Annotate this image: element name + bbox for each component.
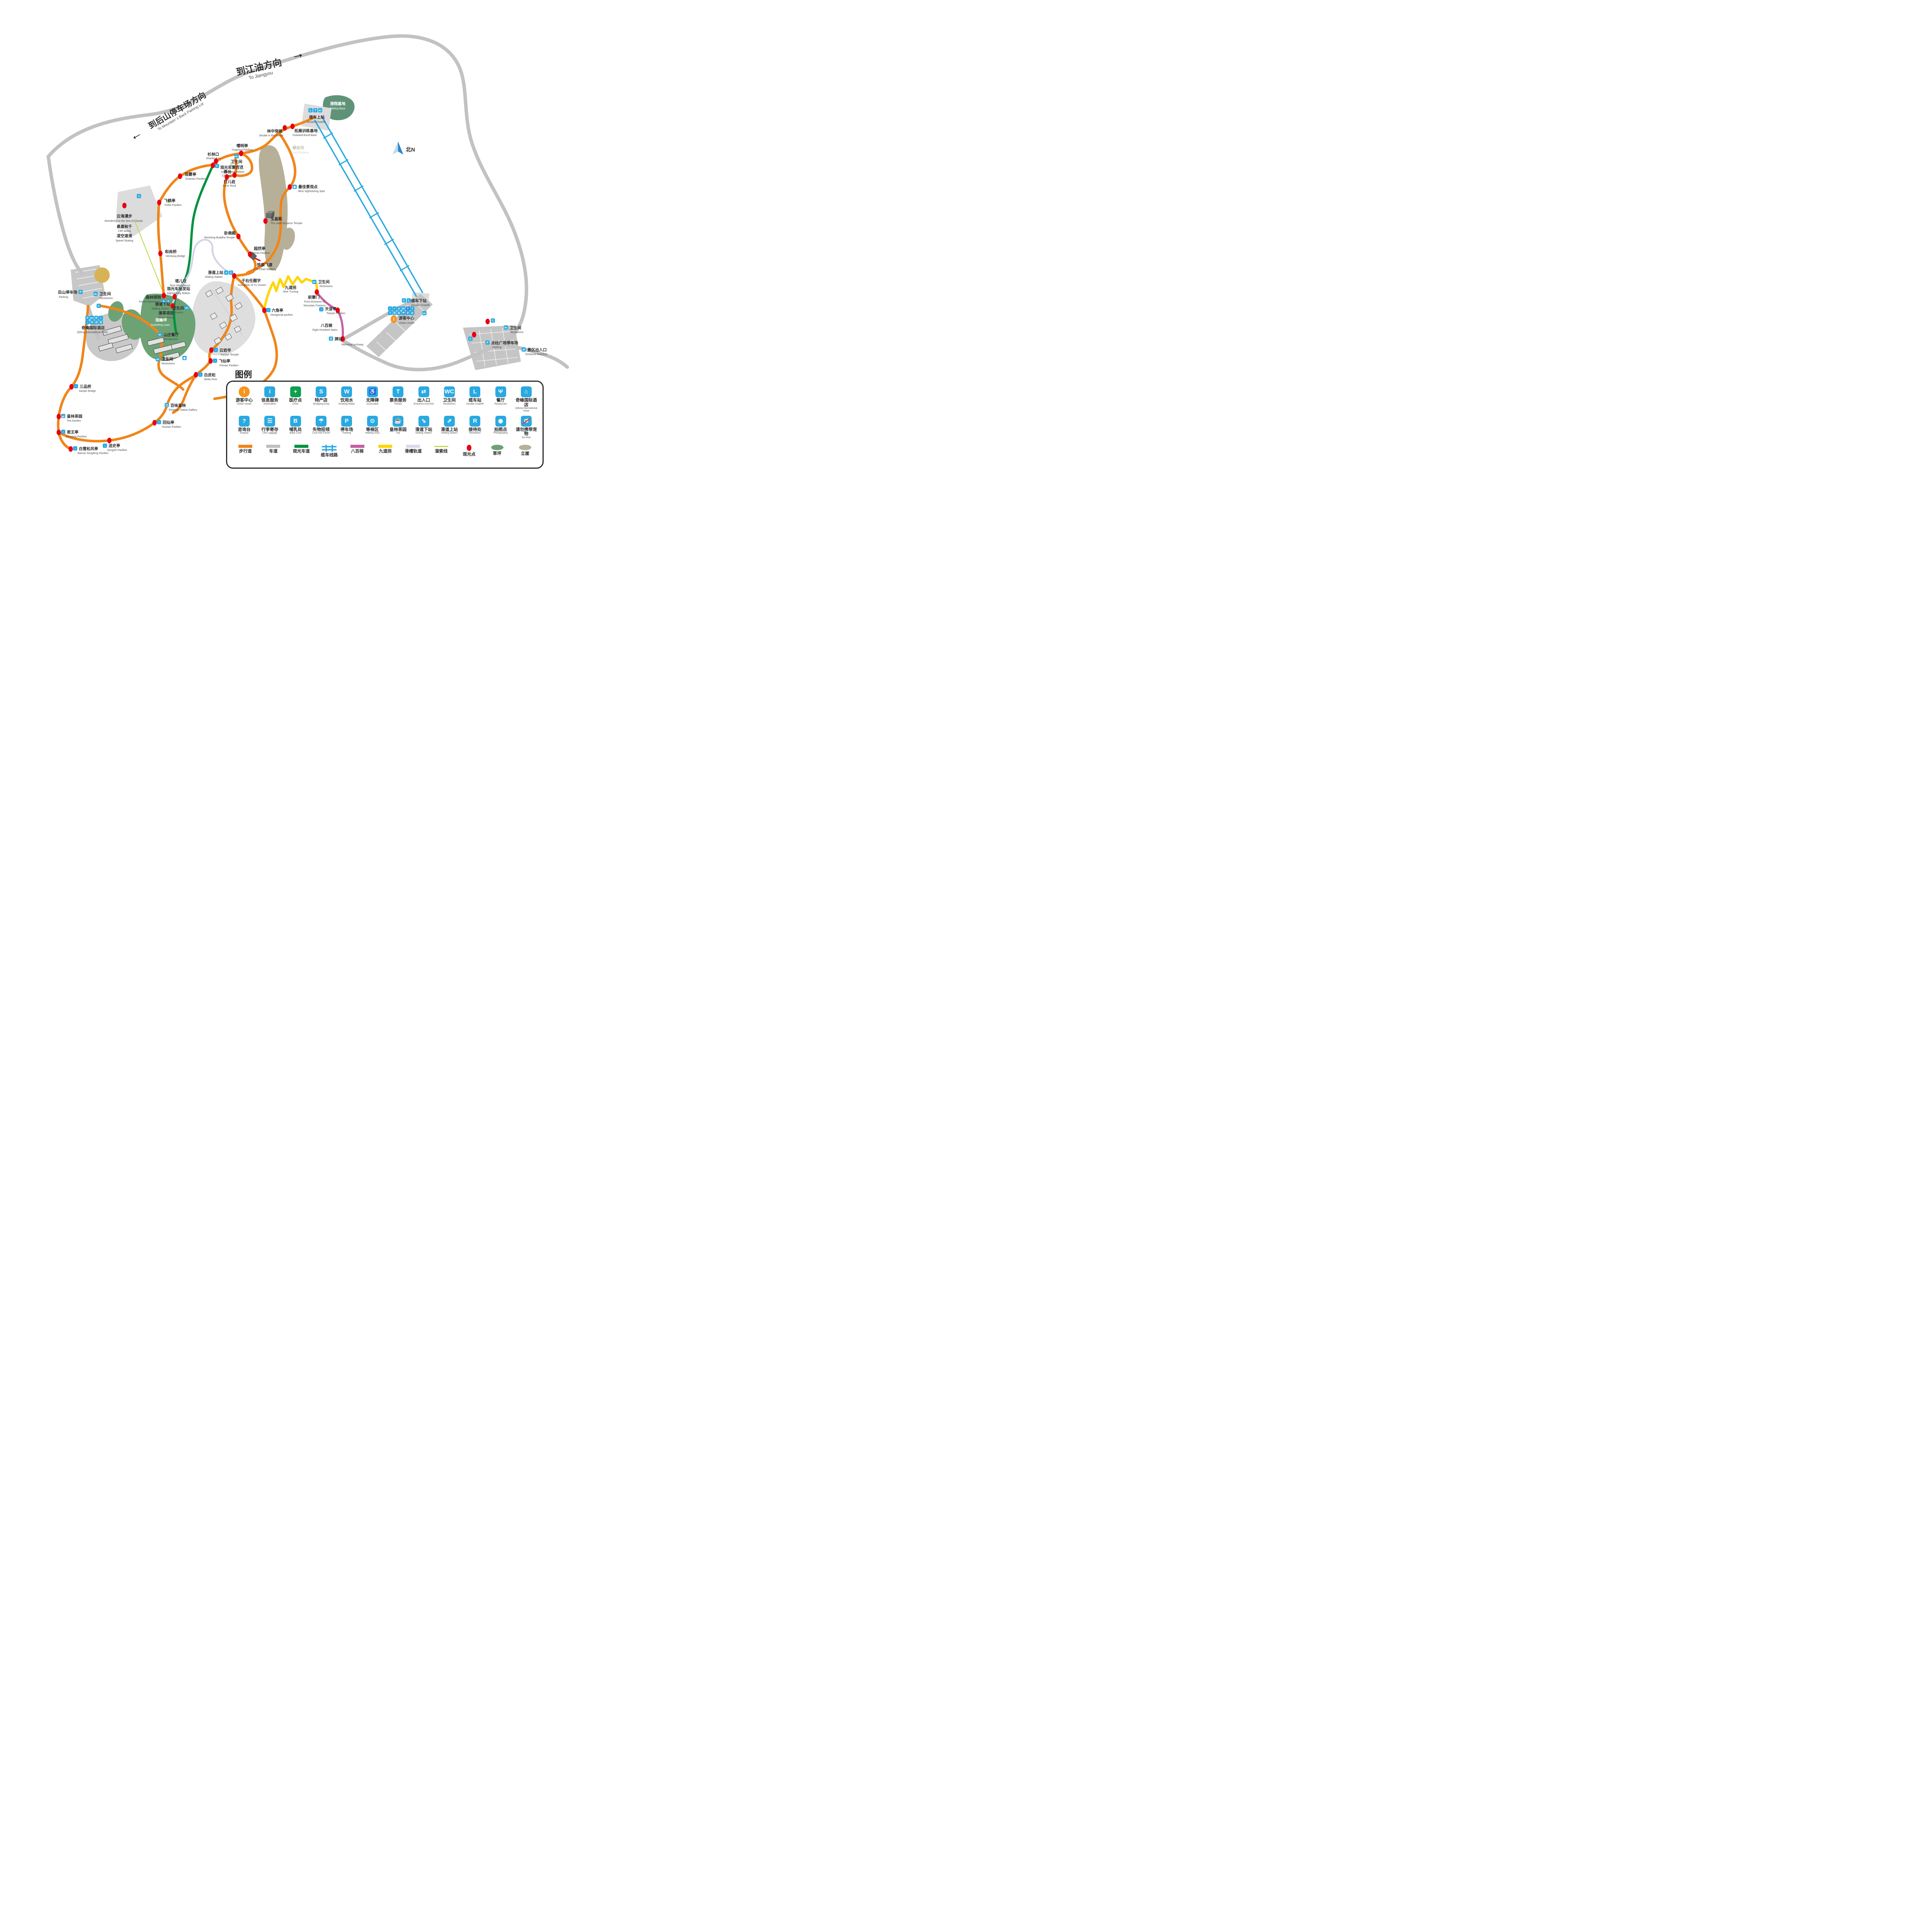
- legend-item-information: i信息服务Information: [257, 386, 282, 413]
- legend-item-tea: ☕皇林茶园Tea: [386, 415, 410, 439]
- spot-dot: [211, 163, 215, 168]
- legend-swatch: [378, 445, 392, 448]
- poi-label-cn: 滑翔基地: [330, 101, 345, 106]
- legend-label-cn: 餐厅: [488, 398, 513, 403]
- spot-dot: [288, 184, 292, 190]
- poi-label-en: Restrooms: [230, 165, 243, 167]
- restaurant-icon: Ψ: [90, 320, 94, 325]
- legend-label-en: Baby Care: [283, 432, 308, 435]
- tea-icon: ☕: [61, 414, 65, 418]
- legend-item-restrooms: WC卫生间Restrooms: [437, 386, 462, 413]
- legend-box: i游客中心Visitor centeri信息服务Information+医疗点C…: [226, 381, 544, 469]
- spot-dot: [178, 173, 182, 179]
- legend-item-restaurant: Ψ餐厅Restaurant: [488, 386, 513, 413]
- poi-label-cn: 卫生间: [99, 291, 111, 296]
- glide-up-icon: ⇗: [224, 270, 228, 275]
- spot-dot: [69, 446, 73, 452]
- legend-label-en: Enquiry: [232, 432, 257, 435]
- restaurant-icon: Ψ: [495, 386, 506, 397]
- spot-dot: [315, 289, 319, 295]
- legend-label-en: Waiting Area: [360, 432, 385, 435]
- poi-label-en: Parking: [59, 296, 68, 299]
- poi-label-cn: 皇林茶园: [67, 414, 82, 419]
- svg-text:♿: ♿: [406, 307, 410, 310]
- legend-line-步行道: 步行道: [232, 442, 259, 458]
- poi-label-en: Shanlin Kou: [206, 157, 221, 160]
- svg-text:◉: ◉: [183, 356, 186, 360]
- poi-label-cn: 卫生间: [172, 306, 184, 311]
- poi-baiwei-huanglin: ∏百味皇林Emperor Statue Gallery: [165, 403, 197, 412]
- legend-label-en: Gliding Station: [437, 432, 462, 435]
- legend-line-九道拐: 九道拐: [372, 442, 399, 458]
- chairlift-icon: L: [469, 386, 480, 397]
- poi-label-cn: 八百梯: [320, 323, 332, 328]
- restroom-icon: WC: [444, 386, 455, 397]
- svg-text:WC: WC: [156, 359, 160, 361]
- legend-label-cn: 奇峰国际酒店: [514, 398, 539, 407]
- info-icon: i: [388, 306, 392, 311]
- spot-dot: [57, 414, 61, 419]
- poi-label-cn: 森林探险: [145, 295, 162, 300]
- scenic-map-canvas: 到江油方向 To Jiangyou → 到后山停车场方向 To Mountain…: [0, 0, 606, 486]
- poi-label-en: Guanfeng Lawn: [151, 324, 170, 327]
- clinic-icon: +: [393, 306, 397, 311]
- enquiry-icon: ?: [388, 311, 392, 315]
- legend-swatch: [350, 445, 364, 448]
- svg-text:⌂: ⌂: [267, 308, 269, 312]
- legend-label-cn: 观光车道: [288, 449, 315, 454]
- poi-label-en: Gliding Station: [205, 276, 223, 279]
- legend-label-cn: 票务服务: [386, 398, 410, 403]
- pavilion-icon: ⌂: [73, 446, 77, 451]
- svg-text:WC: WC: [90, 317, 94, 320]
- svg-text:R: R: [95, 316, 98, 320]
- poi-label-cn: 白皮松: [204, 372, 216, 378]
- poi-reclining-buddha-temple: 卧佛殿Reclining Buddha Temple: [204, 231, 241, 239]
- svg-text:WC: WC: [94, 293, 97, 296]
- accessible-icon: ♿: [367, 386, 378, 397]
- svg-text:☕: ☕: [61, 414, 65, 418]
- tea-icon: ☕: [393, 416, 403, 427]
- poi-label-cn: 超然亭: [253, 246, 265, 251]
- spot-dot: [70, 384, 74, 389]
- poi-rock-climbing-label: 攀岩场Rock Climbing: [291, 145, 308, 154]
- poi-label-en: Wondering in the Sea of Clouds: [105, 220, 143, 223]
- legend-label-en: Entrance And Exit: [412, 403, 436, 406]
- svg-text:i: i: [100, 316, 101, 320]
- legend-item-lost-and-found: ☂失物招领Lost And Found: [309, 415, 333, 439]
- legend-label-cn: 请勿携带宠物: [514, 428, 539, 437]
- legend-item-reception: R接待处Reception: [463, 415, 487, 439]
- legend-line-观光点: 观光点: [456, 442, 483, 458]
- spot-dot: [194, 372, 198, 378]
- poi-best-sightseeing-spot: ◉最佳景观点Best Sightseeing Spot: [288, 184, 325, 193]
- reception-icon: R: [469, 416, 480, 427]
- poi-label-en: Eight Hundred Stairs: [313, 329, 338, 332]
- restroom-icon: WC: [90, 316, 94, 320]
- hotel-icon: ⌂: [85, 320, 90, 325]
- svg-text:P: P: [407, 311, 409, 315]
- visitor-icon: i: [239, 386, 250, 397]
- svg-text:∩: ∩: [75, 384, 77, 388]
- poi-label-en: Restrooms: [170, 311, 183, 314]
- pavilion-icon: ⌂: [198, 372, 202, 377]
- tickets-icon: T: [410, 306, 415, 311]
- poi-label-cn: 君王亭: [67, 430, 78, 435]
- legend-label-cn: 八百梯: [344, 449, 371, 454]
- poi-label-cn: 百味皇林: [170, 403, 186, 408]
- poi-restroom-nineturn: WC卫生间Restrooms: [312, 279, 333, 288]
- legend-item-enquiry: ?咨询台Enquiry: [232, 415, 257, 439]
- svg-text:C: C: [98, 304, 100, 308]
- pavilion-icon: ⌂: [266, 308, 270, 312]
- parking-icon: P: [78, 290, 83, 294]
- poi-label-en: Parking: [492, 346, 502, 349]
- poi-houshan-road-stop: C: [97, 304, 101, 308]
- poi-label-en: Qifeng International Hotel: [77, 331, 108, 334]
- legend-label-en: Restaurant: [488, 403, 513, 406]
- restaurant-icon: Ψ: [158, 333, 162, 337]
- poi-label-en: The Jade Emperor Temple: [270, 222, 302, 225]
- poi-label-cn: 缆车下站: [411, 298, 427, 303]
- spot-dot: [264, 218, 268, 224]
- svg-text:C: C: [403, 299, 405, 302]
- spot-dot: [153, 420, 157, 425]
- poi-eight-hundred-stairs-label: 八百梯Eight Hundred Stairs: [313, 323, 338, 332]
- poi-tea-garden: ☕皇林茶园Tea Garden: [57, 414, 83, 422]
- legend-label-cn: 出入口: [412, 398, 436, 403]
- restroom-icon: WC: [422, 311, 427, 315]
- legend-label-cn: 草坪: [484, 452, 511, 456]
- legend-label-en: Information: [257, 403, 282, 406]
- legend-label-en: Lost And Found: [309, 432, 333, 435]
- sightseeing-car-icon: C: [468, 337, 473, 341]
- poi-label-en: Best Sightseeing Spot: [298, 190, 325, 193]
- poi-label-cn: 后山停车场: [58, 290, 77, 295]
- sightseeing-car-icon: C: [215, 164, 219, 168]
- tickets-icon: T: [313, 108, 318, 112]
- parking-icon: P: [85, 316, 90, 320]
- baby-icon: B: [290, 416, 301, 427]
- poi-speed-skating: 凌空速滑Speed Skating: [116, 233, 133, 242]
- legend-item-parking: P停车场Parking: [334, 415, 359, 439]
- archway-icon: ∏: [165, 403, 169, 407]
- svg-text:⌂: ⌂: [214, 359, 216, 362]
- poi-label-en: Chaoran Pavilion: [249, 252, 270, 255]
- svg-text:P: P: [80, 290, 82, 294]
- legend-swatch: [519, 445, 531, 450]
- svg-text:∏: ∏: [165, 403, 168, 407]
- pavilion-icon: ⌂: [157, 420, 161, 424]
- poi-nine-turning-label: 九道拐Nine Turning: [283, 285, 298, 293]
- legend-item-double-chairlift: L缆车站Double Chairlift: [463, 386, 487, 413]
- svg-text:∿: ∿: [138, 194, 140, 198]
- restroom-icon: WC: [94, 292, 98, 296]
- poi-label-cn: 送史亭: [108, 443, 120, 448]
- poi-label-en: Gliding Base: [330, 107, 345, 110]
- svg-text:◉: ◉: [293, 185, 296, 189]
- no-pets-icon: Ø: [94, 320, 99, 325]
- svg-text:Ø: Ø: [95, 321, 98, 324]
- poi-entrance-and-exit: ⇄景区出入口Entrance And Exit: [522, 347, 547, 356]
- poi-gliding-station-up: ⇗C滑道上站Gliding Station: [205, 270, 236, 279]
- poi-label-en: Reclining Buddha Temple: [204, 236, 235, 239]
- poi-label-cn: 卫生间: [510, 325, 521, 330]
- legend-line-溜索线: 溜索线: [428, 442, 455, 458]
- svg-text:S: S: [398, 307, 400, 310]
- svg-text:?: ?: [389, 311, 391, 315]
- poi-label-en: hexagonal pavilion: [270, 314, 293, 316]
- chairlift-icon: L: [308, 108, 313, 112]
- poi-label-en: White Pine: [204, 378, 217, 381]
- poi-label-en: Feixian Pavilion: [219, 364, 238, 367]
- svg-text:☰: ☰: [393, 311, 396, 315]
- shop-icon: S: [397, 306, 401, 311]
- legend-item-left-luggage: ☰行李寄存Left Luggage: [257, 415, 282, 439]
- poi-label-cn: 云岩寺: [219, 348, 231, 353]
- poi-label-cn: 最佳景观点: [298, 184, 318, 189]
- svg-text:W: W: [402, 307, 405, 310]
- poi-label-cn: 卫生间: [318, 279, 330, 284]
- arrow-jiangyou: 到江油方向 To Jiangyou →: [234, 46, 307, 83]
- svg-text:☂: ☂: [402, 311, 405, 315]
- arrow-jiangyou-icon: →: [289, 46, 306, 63]
- legend-row-lines: 步行道车道观光车道缆车线路八百梯九道拐滑槽轨道溜索线观光点草坪立崖: [232, 442, 539, 458]
- poi-label-en: Inscription of Yu Youren: [238, 284, 266, 287]
- spot-dot: [209, 347, 214, 353]
- poi-right-road-stop-1: C: [486, 318, 495, 324]
- poi-label-en: Restaurant: [164, 338, 177, 341]
- sightseeing-car-icon: C: [97, 304, 101, 308]
- sightseeing-car-icon: C: [229, 270, 233, 275]
- chairlift-icon: L: [407, 298, 411, 303]
- poi-photo-point: ◉: [182, 356, 187, 360]
- pavilion-icon: ⌂: [213, 359, 217, 363]
- arrow-backlot-icon: ←: [127, 125, 145, 143]
- luggage-icon: ☰: [393, 311, 397, 315]
- legend-row-services-1: i游客中心Visitor centeri信息服务Information+医疗点C…: [232, 386, 539, 413]
- spot-dot: [122, 203, 127, 208]
- north-arrow-right: [398, 141, 403, 155]
- luggage-icon: ☰: [99, 320, 103, 325]
- legend-item-gliding-station: ⇘滑道下站Gliding Station: [412, 415, 436, 439]
- poi-label-en: Tea Garden: [67, 420, 81, 422]
- sightseeing-car-icon: C: [491, 318, 495, 323]
- legend-label-en: Restrooms: [437, 403, 462, 406]
- legend-swatch: [467, 445, 471, 451]
- enquiry-icon: ?: [239, 416, 250, 427]
- svg-text:⌂: ⌂: [74, 447, 76, 450]
- spot-dot: [209, 358, 213, 364]
- legend-label-en: No Pets: [514, 437, 539, 439]
- camera-icon: ◉: [495, 416, 506, 427]
- poi-restroom-visitor: WC: [422, 311, 427, 315]
- poi-label-en: Shuttle in the Forest: [259, 134, 283, 137]
- poi-white-pine: ⌂白皮松White Pine: [194, 372, 217, 381]
- spot-dot: [262, 308, 267, 313]
- spot-dot: [236, 234, 241, 239]
- poi-label-en: Yingming Pavilion: [231, 149, 253, 151]
- poi-label-cn: 攀岩场: [292, 145, 304, 150]
- glide-up-icon: ⇗: [444, 416, 455, 427]
- legend-label-cn: 信息服务: [257, 398, 282, 403]
- poi-label-en: Guanwu Pavilion: [185, 178, 206, 180]
- spot-dot: [233, 172, 237, 178]
- spot-dot: [486, 319, 490, 324]
- north-indicator: 北N: [393, 141, 415, 155]
- legend-item-gliding-station: ⇗滑道上站Gliding Station: [437, 415, 462, 439]
- svg-text:⌂: ⌂: [87, 321, 88, 324]
- poi-label-cn: 三品桥: [80, 384, 92, 389]
- svg-text:C: C: [230, 271, 232, 274]
- poi-label-cn: 游客中心: [399, 316, 414, 321]
- poi-label-en: Restrooms: [162, 362, 175, 365]
- legend-label-en: Accessible: [360, 403, 385, 406]
- poi-label-cn: 回仙亭: [163, 420, 174, 425]
- svg-text:+: +: [394, 307, 396, 310]
- legend-item-visitor-center: i游客中心Visitor center: [232, 386, 257, 413]
- poi-label-cn: 嘤明亭: [236, 143, 248, 148]
- poi-label-en: Ta’er Mausoleum: [170, 284, 190, 287]
- poi-label-en: Sanpin Bridge: [79, 390, 96, 393]
- legend-line-立崖: 立崖: [512, 442, 539, 458]
- poi-label-cn: 飞鹤亭: [164, 198, 175, 203]
- svg-text:⊙: ⊙: [411, 311, 414, 315]
- legend-line-观光车道: 观光车道: [288, 442, 315, 458]
- poi-label-en: Cliff Chain Walking: [253, 268, 276, 271]
- svg-text:WC: WC: [185, 307, 189, 310]
- legend-line-缆车线路: 缆车线路: [316, 442, 343, 458]
- pavilion-icon: ⌂: [319, 307, 323, 311]
- legend-label-cn: 无障碍: [360, 398, 385, 403]
- legend-item-entrance-and-exit: ⇄出入口Entrance And Exit: [412, 386, 436, 413]
- legend-item-qifeng-international-hotel: ⌂奇峰国际酒店Qifeng International Hotel: [514, 386, 539, 413]
- poi-label-en: Restrooms: [100, 297, 113, 300]
- poi-label-cn: 山庄餐厅: [163, 332, 179, 337]
- waiting-icon: ⊙: [367, 416, 378, 427]
- restroom-icon: WC: [156, 357, 160, 361]
- poi-label-en: Restrooms: [320, 285, 333, 288]
- legend-label-en: Left Luggage: [257, 432, 282, 435]
- poi-label-en: Front Entrance of: [304, 301, 325, 303]
- poi-label-en: Baixue Songfeng Pavilion: [78, 452, 109, 455]
- spot-dot: [157, 200, 162, 205]
- legend-label-cn: 卫生间: [437, 398, 462, 403]
- exit-icon: ⇄: [418, 386, 429, 397]
- legend-swatch: [491, 445, 503, 450]
- legend-swatch: [322, 445, 337, 452]
- svg-text:Ψ: Ψ: [91, 321, 93, 324]
- legend-label-en: Photography: [488, 432, 513, 435]
- poi-label-cn: 林中穿梭: [267, 129, 283, 134]
- svg-text:⌂: ⌂: [215, 348, 217, 352]
- svg-text:⌂: ⌂: [199, 373, 201, 376]
- legend-label-en: Drinking Water: [334, 403, 359, 406]
- shop-icon: S: [316, 386, 327, 397]
- legend-swatch: [406, 445, 420, 448]
- parking-icon: P: [341, 416, 352, 427]
- exit-icon: ⇄: [522, 347, 526, 352]
- legend-label-cn: 饮用水: [334, 398, 359, 403]
- poi-label-en: Cliff Swing: [118, 230, 131, 233]
- poi-label-cn: 云海漫步: [117, 214, 132, 219]
- legend-line-车道: 车道: [260, 442, 287, 458]
- svg-text:WC: WC: [423, 313, 426, 315]
- poi-label-cn: 牌坊: [335, 337, 342, 342]
- legend-label-cn: 缆车线路: [316, 453, 343, 458]
- legend-label-cn: 观光点: [456, 452, 483, 457]
- poi-label-cn: 九道拐: [284, 285, 296, 290]
- restroom-icon: WC: [312, 280, 316, 284]
- bridge-icon: ∩: [74, 384, 78, 388]
- legend-line-滑槽轨道: 滑槽轨道: [400, 442, 427, 458]
- legend-label-en: Tea: [386, 432, 410, 435]
- poi-label-en: Restrooms: [510, 331, 524, 334]
- legend-item-tickets: T票务服务Tickets: [386, 386, 410, 413]
- water-icon: W: [341, 386, 352, 397]
- legend-label-cn: 车道: [260, 449, 287, 454]
- poi-label-en: Tianyin Pavilion: [327, 312, 345, 315]
- legend-item-drinking-water: W饮用水Drinking Water: [334, 386, 359, 413]
- clinic-icon: +: [290, 386, 301, 397]
- poi-feixian-pavilion: ⌂飞仙亭Feixian Pavilion: [209, 358, 239, 367]
- poi-label-en: Emperor Statue Gallery: [169, 409, 197, 412]
- spot-dot: [162, 293, 166, 298]
- legend-label-cn: 滑槽轨道: [400, 449, 427, 454]
- legend-item-no-pets: Ø请勿携带宠物No Pets: [514, 415, 539, 439]
- accessible-icon: ♿: [406, 306, 410, 311]
- svg-text:L: L: [408, 299, 410, 302]
- legend-label-cn: 游客中心: [232, 398, 257, 403]
- poi-yu-youren: 于右任题字Inscription of Yu Youren: [238, 278, 266, 287]
- eight-hundred-stairs-path: [317, 292, 343, 339]
- legend-label-en: Qifeng International Hotel: [514, 407, 539, 413]
- poi-label-cn: 铁索飞渡: [257, 262, 273, 267]
- poi-label-en: Gliding Station: [151, 308, 169, 310]
- svg-text:⌂: ⌂: [62, 430, 64, 434]
- poi-guanwu-pavilion: 观雾亭Guanwu Pavilion: [178, 172, 206, 180]
- sightseeing-car-icon: C: [402, 298, 406, 303]
- spot-dot: [107, 438, 112, 443]
- legend-item-accessible: ♿无障碍Accessible: [360, 386, 385, 413]
- svg-text:WC: WC: [235, 156, 238, 158]
- poi-label-cn: 悬崖秋千: [116, 224, 132, 229]
- svg-text:⌂: ⌂: [158, 420, 160, 424]
- cliff-swing-icon: ∿: [137, 194, 141, 198]
- legend-label-cn: 缆车站: [463, 398, 487, 403]
- svg-text:T: T: [315, 109, 316, 112]
- poi-label-cn: 卧佛殿: [224, 231, 236, 236]
- restroom-icon: WC: [235, 154, 239, 158]
- poi-cliff-swing: 悬崖秋千Cliff Swing: [116, 224, 132, 233]
- poi-label-en: Nine Turning: [283, 291, 298, 293]
- legend-item-photography: ◉拍照点Photography: [488, 415, 513, 439]
- cliff-east: [282, 228, 295, 250]
- poi-label-en: Double Chairlift: [307, 121, 325, 124]
- poi-label-cn: 六角亭: [272, 308, 283, 313]
- pavilion-icon: ⌂: [103, 444, 107, 448]
- poi-label-en: Songshi Pavilion: [107, 449, 127, 452]
- poi-gliding-base-label: 滑翔基地Gliding Base: [330, 101, 345, 110]
- poi-label-cn: 观光车始发站: [167, 286, 190, 291]
- legend-label-en: Visitor center: [232, 403, 257, 406]
- svg-text:⇗: ⇗: [225, 271, 227, 274]
- poi-label-en: Yunyan Temple: [220, 354, 239, 356]
- spot-dot: [472, 332, 476, 337]
- svg-text:WC: WC: [318, 110, 322, 112]
- poi-baixue-songfeng-pavilion: ⌂白雪松风亭Baixue Songfeng Pavilion: [69, 446, 109, 455]
- svg-text:P: P: [87, 316, 88, 320]
